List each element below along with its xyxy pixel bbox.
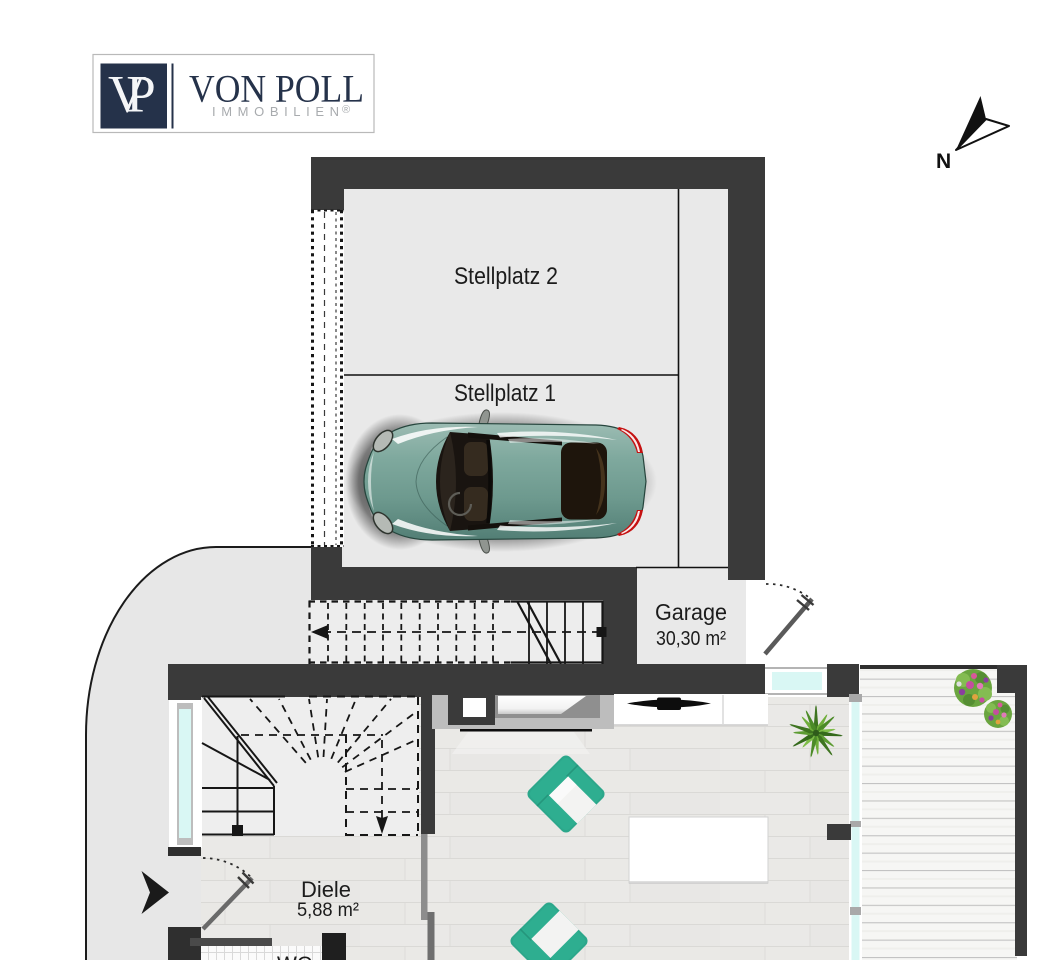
svg-text:Diele: Diele [301,877,351,902]
svg-text:WC: WC [277,953,312,960]
svg-text:N: N [936,150,951,173]
svg-text:Garage: Garage [655,599,727,625]
svg-text:5,88 m²: 5,88 m² [297,900,359,921]
svg-text:30,30 m²: 30,30 m² [656,627,726,650]
svg-text:®: ® [342,104,350,116]
svg-text:Stellplatz 2: Stellplatz 2 [454,263,558,290]
svg-text:IMMOBILIEN: IMMOBILIEN [212,104,339,119]
svg-text:Stellplatz 1: Stellplatz 1 [454,380,556,407]
